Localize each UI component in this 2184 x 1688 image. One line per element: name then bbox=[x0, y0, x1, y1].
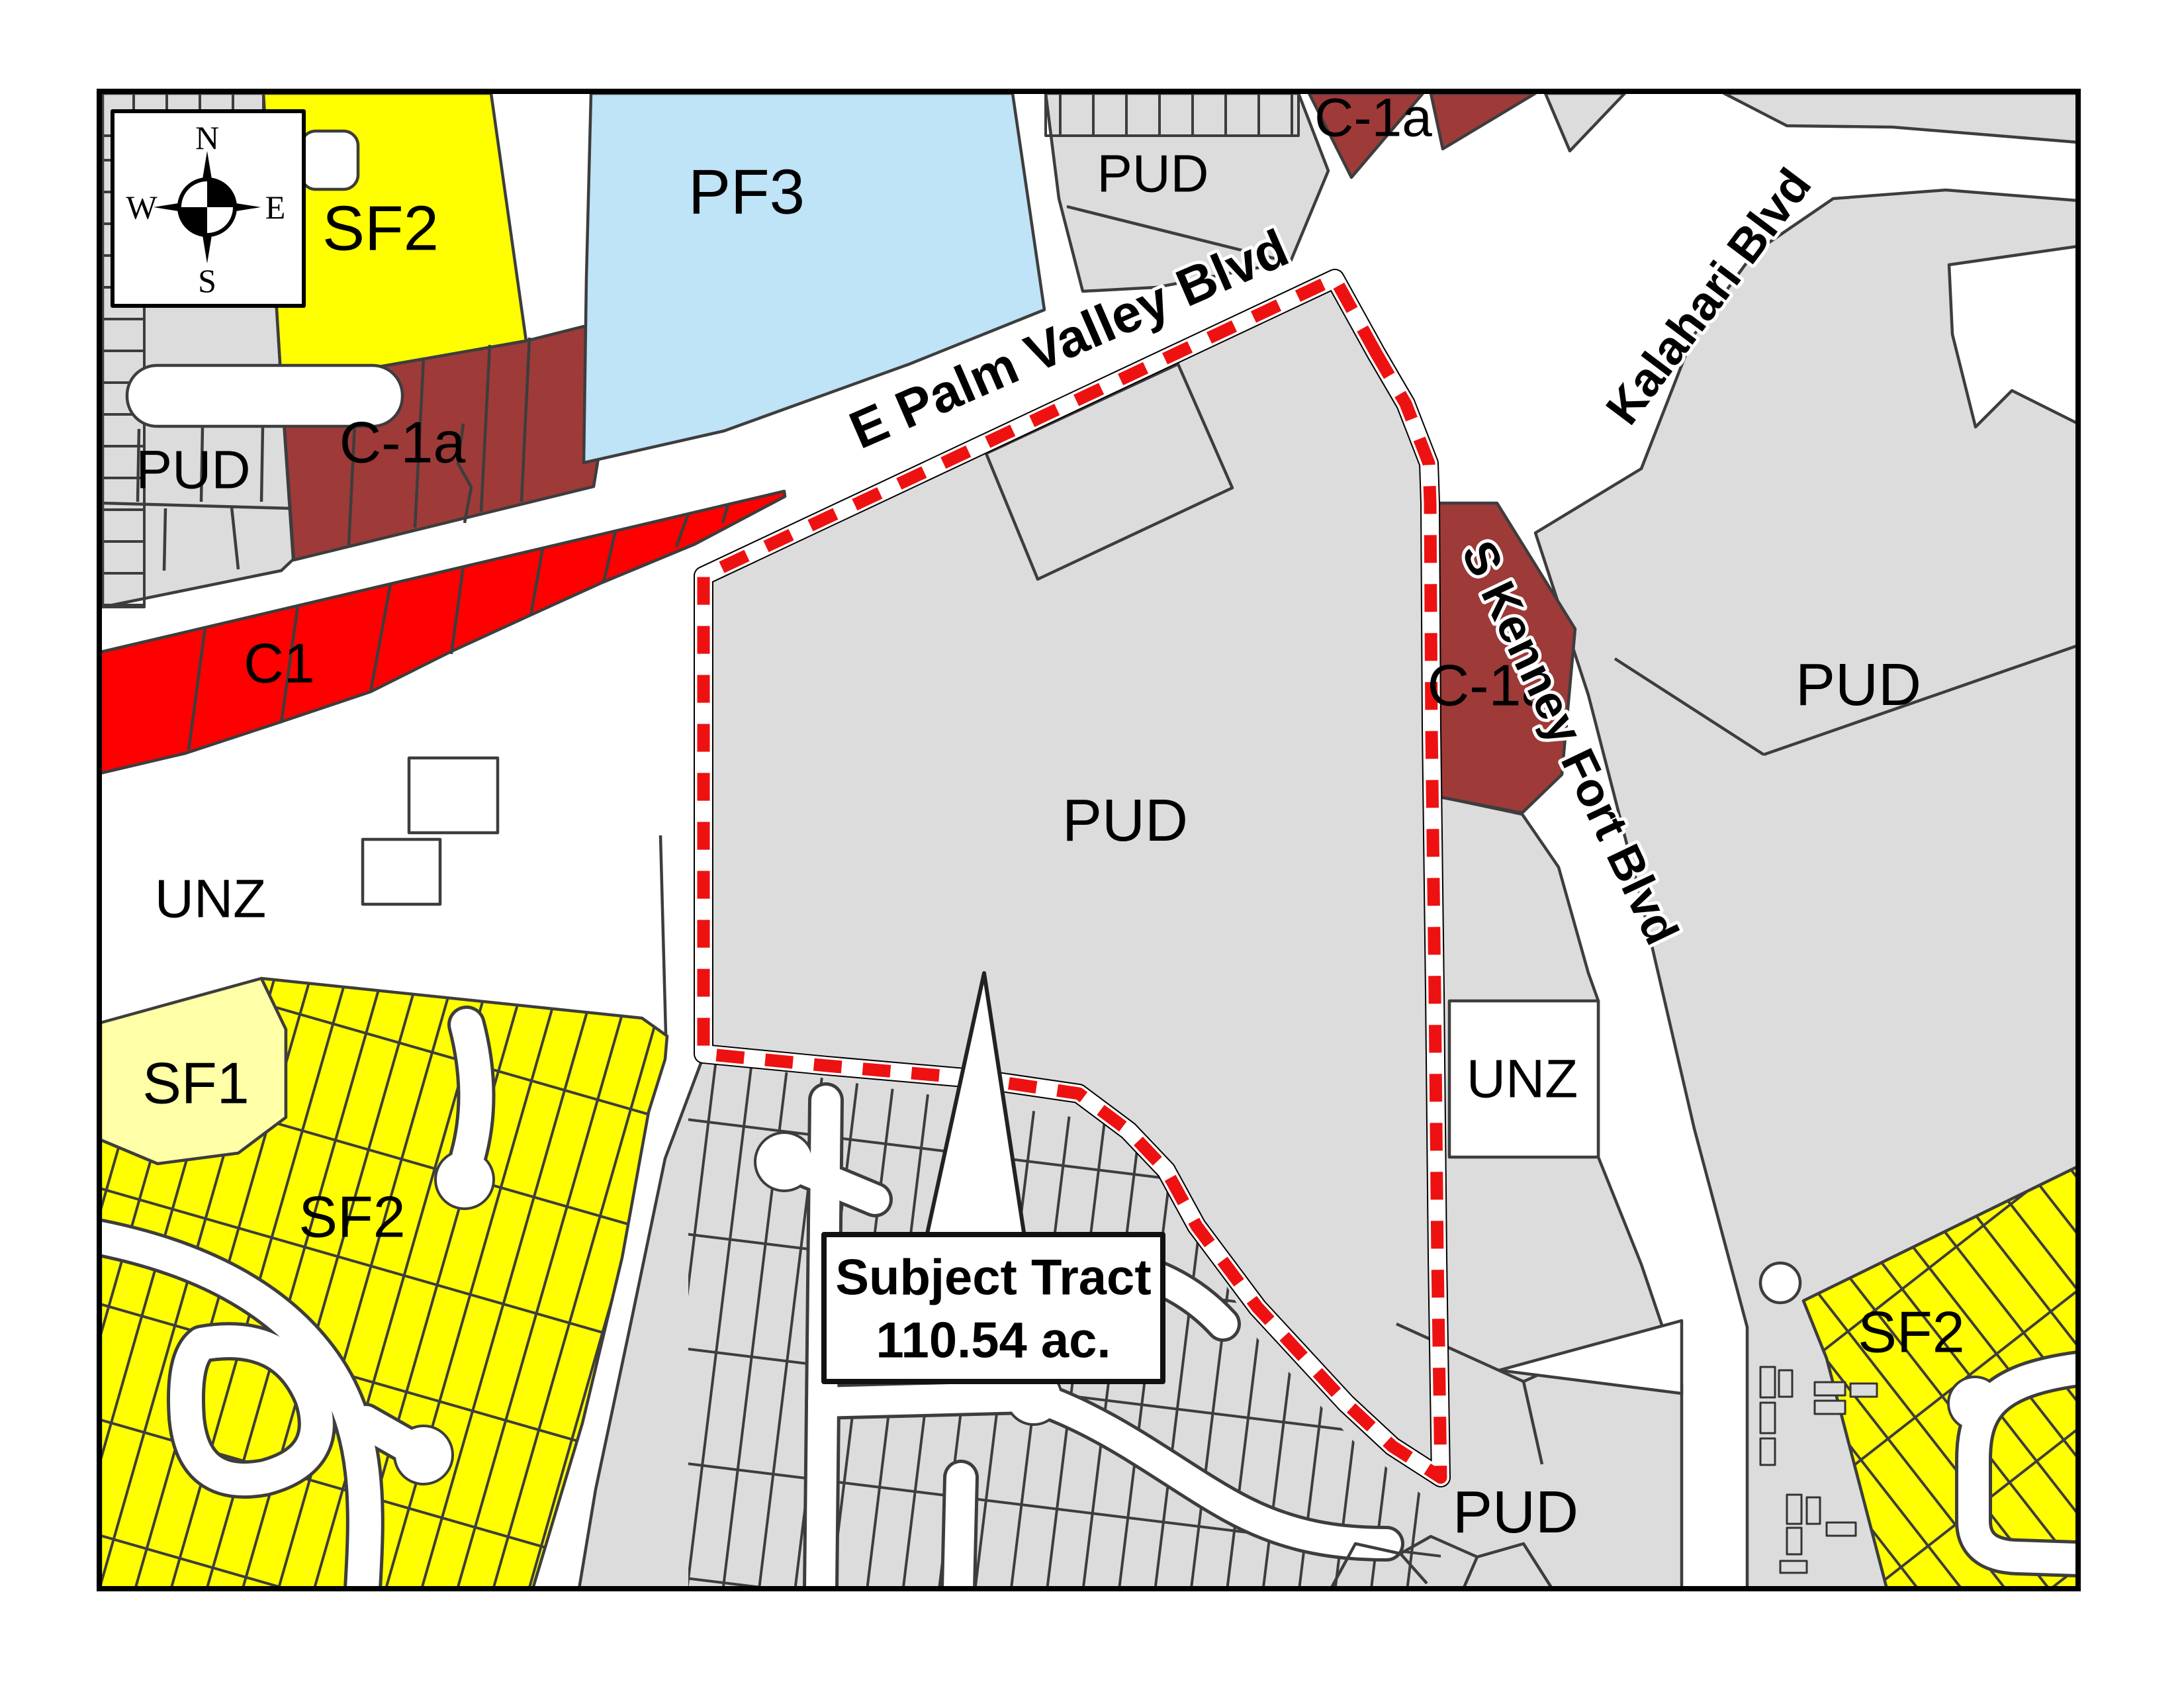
compass-rose: N S W E bbox=[113, 111, 304, 306]
compass-e: E bbox=[265, 189, 286, 226]
label-c1a-north: C-1a bbox=[1314, 88, 1432, 148]
road-notch-nw bbox=[301, 131, 358, 189]
label-pud-south: PUD bbox=[1453, 1479, 1578, 1546]
unz-west-parcel-1 bbox=[409, 758, 498, 833]
label-c1a-northwest: C-1a bbox=[340, 410, 466, 475]
label-unz-west: UNZ bbox=[155, 869, 267, 929]
label-pf3: PF3 bbox=[688, 157, 805, 228]
road-scallop bbox=[1760, 1263, 1800, 1303]
label-pud-center: PUD bbox=[1062, 788, 1188, 854]
zoning-map: Subject Tract 110.54 ac. N S W E SF2 PF3… bbox=[0, 0, 2184, 1688]
label-unz-east: UNZ bbox=[1467, 1049, 1578, 1109]
label-c1: C1 bbox=[244, 632, 314, 694]
label-pud-north: PUD bbox=[1097, 144, 1209, 203]
unz-west-parcel-2 bbox=[363, 839, 440, 904]
label-sf2-northwest: SF2 bbox=[322, 193, 439, 264]
zoning-map-page: Subject Tract 110.54 ac. N S W E SF2 PF3… bbox=[0, 0, 2184, 1688]
label-sf1: SF1 bbox=[142, 1051, 249, 1116]
compass-n: N bbox=[195, 119, 219, 156]
label-pud-east: PUD bbox=[1796, 652, 1921, 718]
label-sf2-southwest: SF2 bbox=[298, 1184, 405, 1250]
compass-s: S bbox=[198, 262, 216, 299]
subject-tract-label-line1: Subject Tract bbox=[835, 1250, 1151, 1306]
label-pud-northwest: PUD bbox=[136, 440, 250, 500]
label-sf2-southeast: SF2 bbox=[1858, 1299, 1964, 1365]
subject-tract-label-line2: 110.54 ac. bbox=[876, 1313, 1111, 1369]
compass-w: W bbox=[126, 189, 158, 226]
